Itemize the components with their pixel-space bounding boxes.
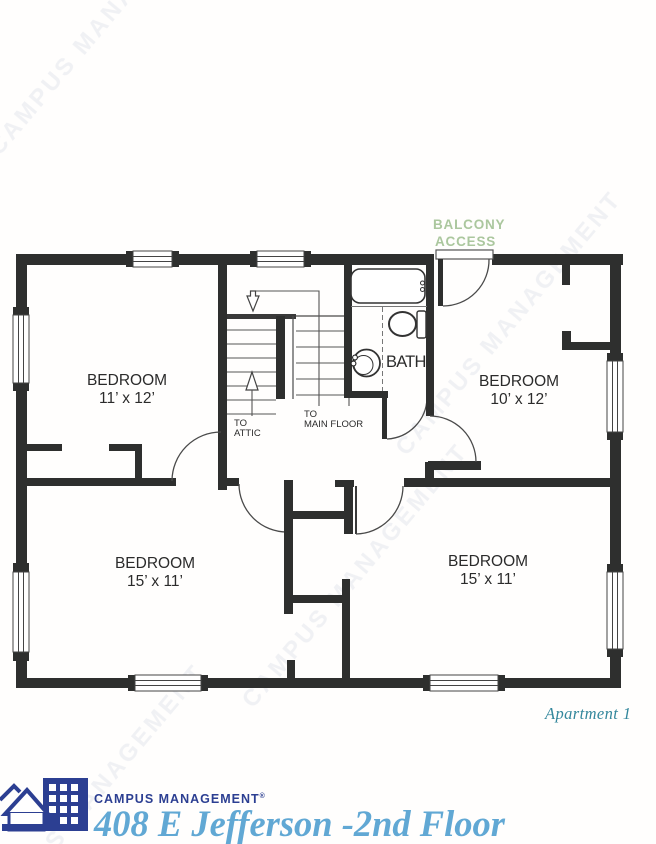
svg-text:10’ x 12’: 10’ x 12’ <box>490 391 547 408</box>
svg-text:Apartment 1: Apartment 1 <box>544 704 631 723</box>
svg-text:ACCESS: ACCESS <box>435 234 496 249</box>
svg-text:15’ x 11’: 15’ x 11’ <box>127 573 183 590</box>
svg-text:BALCONY: BALCONY <box>433 217 505 232</box>
svg-text:15’ x 11’: 15’ x 11’ <box>460 571 516 588</box>
svg-text:BEDROOM: BEDROOM <box>87 372 167 389</box>
svg-text:11’ x 12’: 11’ x 12’ <box>99 390 155 407</box>
svg-text:BEDROOM: BEDROOM <box>115 555 195 572</box>
svg-text:BATH: BATH <box>386 353 426 371</box>
svg-text:408 E Jefferson -2nd Floor: 408 E Jefferson -2nd Floor <box>93 803 506 844</box>
svg-text:CAMPUS MANAGEMENT: CAMPUS MANAGEMENT <box>0 0 220 161</box>
svg-text:MAIN FLOOR: MAIN FLOOR <box>304 419 363 430</box>
svg-text:BEDROOM: BEDROOM <box>479 373 559 390</box>
svg-text:BEDROOM: BEDROOM <box>448 553 528 570</box>
svg-text:ATTIC: ATTIC <box>234 428 261 439</box>
